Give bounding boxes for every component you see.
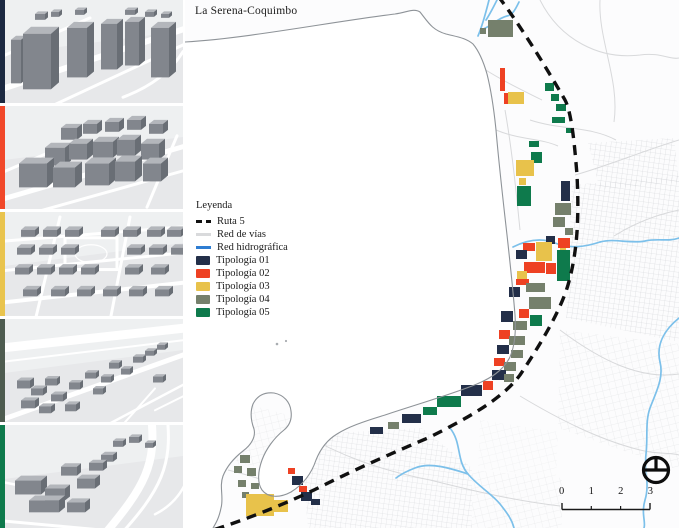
typology-patch: [497, 345, 509, 354]
typology-patch: [246, 494, 274, 516]
scale-bar-line: [559, 502, 653, 511]
legend-item-tipologia-04: Tipología 04: [196, 293, 288, 306]
typology-patch: [561, 181, 570, 201]
legend-label: Red hidrográfica: [217, 242, 288, 253]
swatch-tipologia-04: [196, 295, 210, 304]
typology-patch: [234, 466, 242, 473]
typology-patch: [551, 94, 559, 101]
typology-patch: [516, 160, 534, 176]
typology-patch: [523, 243, 535, 251]
typology-patch: [437, 396, 461, 407]
typology-patch: [483, 381, 493, 390]
typology-patch: [240, 455, 250, 463]
typology-patch: [488, 20, 513, 37]
typology-patch: [517, 271, 527, 279]
typology-04-3d-render: [5, 319, 183, 422]
typology-panel-4: [0, 319, 183, 422]
scale-bar-numbers: 0 1 2 3: [559, 486, 653, 498]
typology-patch: [553, 217, 565, 227]
legend-label: Tipología 01: [216, 255, 270, 266]
typology-02-3d-render: [5, 106, 183, 209]
typology-panel-3: [0, 212, 183, 315]
north-arrow-icon: [637, 451, 675, 489]
legend-item-tipologia-01: Tipología 01: [196, 254, 288, 267]
typology-color-bar-5: [0, 425, 5, 528]
typology-patch: [519, 178, 526, 185]
legend-label: Tipología 02: [216, 268, 270, 279]
legend-item-tipologia-02: Tipología 02: [196, 267, 288, 280]
legend-label: Ruta 5: [217, 216, 245, 227]
typology-patch: [501, 311, 513, 322]
typology-color-bar-3: [0, 212, 5, 315]
typology-patch: [509, 287, 520, 297]
typology-patch: [509, 336, 525, 345]
typology-panel-5: [0, 425, 183, 528]
typology-patch: [529, 297, 551, 309]
scale-tick-label: 0: [559, 486, 564, 497]
legend: Leyenda Ruta 5 Red de vías Red hidrográf…: [196, 200, 288, 319]
typology-patch: [556, 104, 566, 111]
typology-patch: [499, 330, 510, 339]
typology-color-bar-2: [0, 106, 5, 209]
typology-patch: [423, 407, 437, 415]
typology-patch: [388, 422, 399, 429]
typology-patch: [565, 228, 573, 235]
legend-item-tipologia-03: Tipología 03: [196, 280, 288, 293]
map-title: La Serena-Coquimbo: [195, 5, 297, 17]
typology-patch: [517, 186, 531, 206]
legend-title: Leyenda: [196, 200, 288, 211]
typology-panel-2: [0, 106, 183, 209]
typology-patch: [546, 263, 556, 274]
swatch-tipologia-05: [196, 308, 210, 317]
legend-label: Red de vías: [217, 229, 266, 240]
legend-item-vias: Red de vías: [196, 228, 288, 241]
typology-patch: [530, 315, 542, 326]
typology-patch: [500, 68, 505, 91]
typology-patch: [529, 141, 539, 147]
typology-patch: [370, 427, 383, 434]
typology-patch: [480, 28, 486, 34]
typology-patch: [526, 283, 545, 292]
swatch-tipologia-02: [196, 269, 210, 278]
typology-patch: [402, 414, 421, 423]
dashed-line-symbol: [196, 220, 211, 223]
legend-item-ruta5: Ruta 5: [196, 215, 288, 228]
typology-patch: [558, 238, 570, 248]
typology-patch: [504, 374, 514, 382]
legend-item-tipologia-05: Tipología 05: [196, 306, 288, 319]
typology-patch: [238, 480, 246, 487]
typology-patch: [519, 309, 529, 318]
scale-tick-label: 1: [589, 486, 594, 497]
figure: La Serena-Coquimbo Leyenda Ruta 5 Red de…: [0, 0, 679, 528]
swatch-tipologia-01: [196, 256, 210, 265]
scale-tick-label: 3: [648, 486, 653, 497]
typology-patch: [557, 250, 570, 281]
typology-panel-1: [0, 0, 183, 103]
typology-patch: [516, 250, 527, 259]
typology-patch: [552, 117, 565, 123]
typology-patch: [555, 203, 571, 215]
typology-05-3d-render: [5, 425, 183, 528]
scale-tick-label: 2: [618, 486, 623, 497]
typology-patch: [536, 242, 552, 261]
typology-patch: [288, 468, 295, 474]
typology-color-bar-1: [0, 0, 5, 103]
typology-patch: [545, 83, 554, 91]
legend-label: Tipología 04: [216, 294, 270, 305]
typology-patch: [494, 358, 505, 366]
typology-render-column: [0, 0, 183, 528]
typology-01-3d-render: [5, 0, 183, 103]
typology-patch: [511, 350, 523, 358]
road-line-symbol: [196, 233, 211, 236]
river-line-symbol: [196, 246, 211, 249]
typology-patch: [504, 93, 508, 104]
swatch-tipologia-03: [196, 282, 210, 291]
legend-label: Tipología 05: [216, 307, 270, 318]
typology-patch: [524, 262, 545, 273]
typology-patch: [508, 92, 524, 104]
typology-03-3d-render: [5, 212, 183, 315]
typology-patch: [247, 468, 256, 476]
typology-color-bar-4: [0, 319, 5, 422]
legend-label: Tipología 03: [216, 281, 270, 292]
map-canvas: La Serena-Coquimbo Leyenda Ruta 5 Red de…: [185, 0, 679, 528]
typology-patch: [299, 486, 307, 492]
typology-patch: [251, 483, 259, 489]
typology-patch: [311, 499, 320, 505]
scale-bar: 0 1 2 3: [559, 486, 653, 516]
legend-item-hidro: Red hidrográfica: [196, 241, 288, 254]
